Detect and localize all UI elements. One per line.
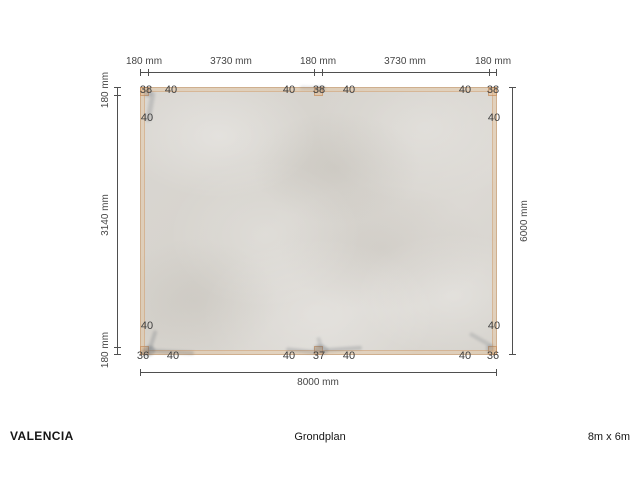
product-name: VALENCIA [10,429,74,443]
part-number: 38 [487,84,499,96]
part-number: 40 [283,84,295,96]
view-title: Grondplan [294,430,345,444]
dim-tick [140,369,141,376]
dim-tick [509,354,516,355]
floor-plan-canvas: 180 mm 3730 mm 180 mm 3730 mm 180 mm 180… [0,0,640,480]
dim-tick [114,354,121,355]
dim-left-2: 180 mm [100,332,112,368]
dim-tick [496,369,497,376]
part-number: 40 [141,320,153,332]
part-number: 40 [141,112,153,124]
dim-line-left [117,87,118,355]
dim-tick [148,69,149,76]
part-number: 40 [165,84,177,96]
dim-bottom-0: 8000 mm [297,377,339,389]
part-number: 40 [343,84,355,96]
part-number: 38 [140,84,152,96]
foundation-beam-left [140,87,145,355]
foundation-beam-right [492,87,497,355]
dim-tick [509,87,516,88]
dim-top-1: 3730 mm [210,56,252,68]
part-number: 37 [313,350,325,362]
part-number: 40 [488,320,500,332]
part-number: 40 [167,350,179,362]
part-number: 38 [313,84,325,96]
part-number: 36 [137,350,149,362]
dim-left-1: 3140 mm [100,194,112,236]
dim-tick [114,95,121,96]
dim-right-0: 6000 mm [519,200,531,242]
plan-size: 8m x 6m [588,430,630,444]
dim-line-top [140,72,497,73]
dim-top-0: 180 mm [126,56,162,68]
dim-tick [114,347,121,348]
dim-tick [489,69,490,76]
dim-line-right [512,87,513,355]
part-number: 40 [459,84,471,96]
dim-line-bottom [140,372,497,373]
part-number: 40 [343,350,355,362]
part-number: 40 [459,350,471,362]
dim-tick [114,87,121,88]
dim-top-4: 180 mm [475,56,511,68]
dim-top-3: 3730 mm [384,56,426,68]
part-number: 36 [487,350,499,362]
part-number: 40 [283,350,295,362]
concrete-slab [140,87,497,355]
dim-left-0: 180 mm [100,72,112,108]
dim-tick [140,69,141,76]
dim-tick [496,69,497,76]
dim-tick [314,69,315,76]
dim-tick [322,69,323,76]
dim-top-2: 180 mm [300,56,336,68]
part-number: 40 [488,112,500,124]
